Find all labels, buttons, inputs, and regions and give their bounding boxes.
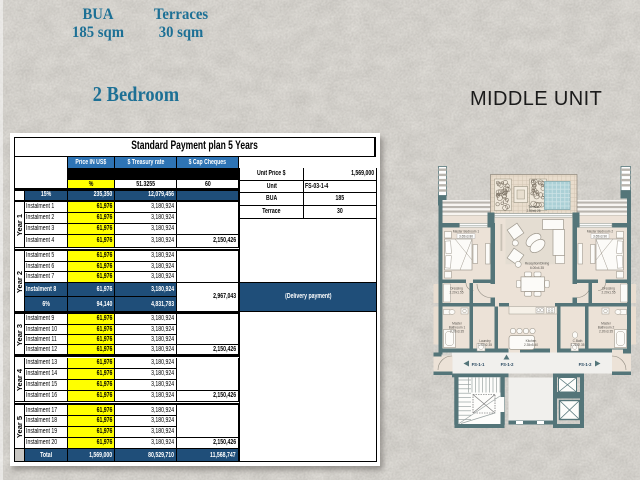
svg-text:2.20x3.35: 2.20x3.35 [599,330,613,334]
svg-text:FS-1-2: FS-1-2 [501,362,514,367]
svg-text:2.35x5.40: 2.35x5.40 [524,343,538,347]
svg-text:2.20x1.55: 2.20x1.55 [449,291,463,295]
svg-text:Master Bedroom 1: Master Bedroom 1 [453,230,479,234]
svg-text:2.20x1.55: 2.20x1.55 [601,291,615,295]
svg-text:FS-1-2: FS-1-2 [579,362,592,367]
svg-text:3.65x3.90: 3.65x3.90 [593,234,607,238]
svg-text:1.75x2.35: 1.75x2.35 [570,343,584,347]
svg-text:3.65x3.80: 3.65x3.80 [459,234,473,238]
svg-text:Reception/Dining: Reception/Dining [525,262,550,266]
svg-text:1.75x2.35: 1.75x2.35 [478,343,492,347]
svg-text:6.00x4.35: 6.00x4.35 [530,266,544,270]
svg-text:FS-1-1: FS-1-1 [472,362,485,367]
svg-text:Master Bedroom 2: Master Bedroom 2 [587,230,613,234]
svg-text:2.80x6.25: 2.80x6.25 [526,209,540,213]
svg-text:2.20x3.35: 2.20x3.35 [450,330,464,334]
